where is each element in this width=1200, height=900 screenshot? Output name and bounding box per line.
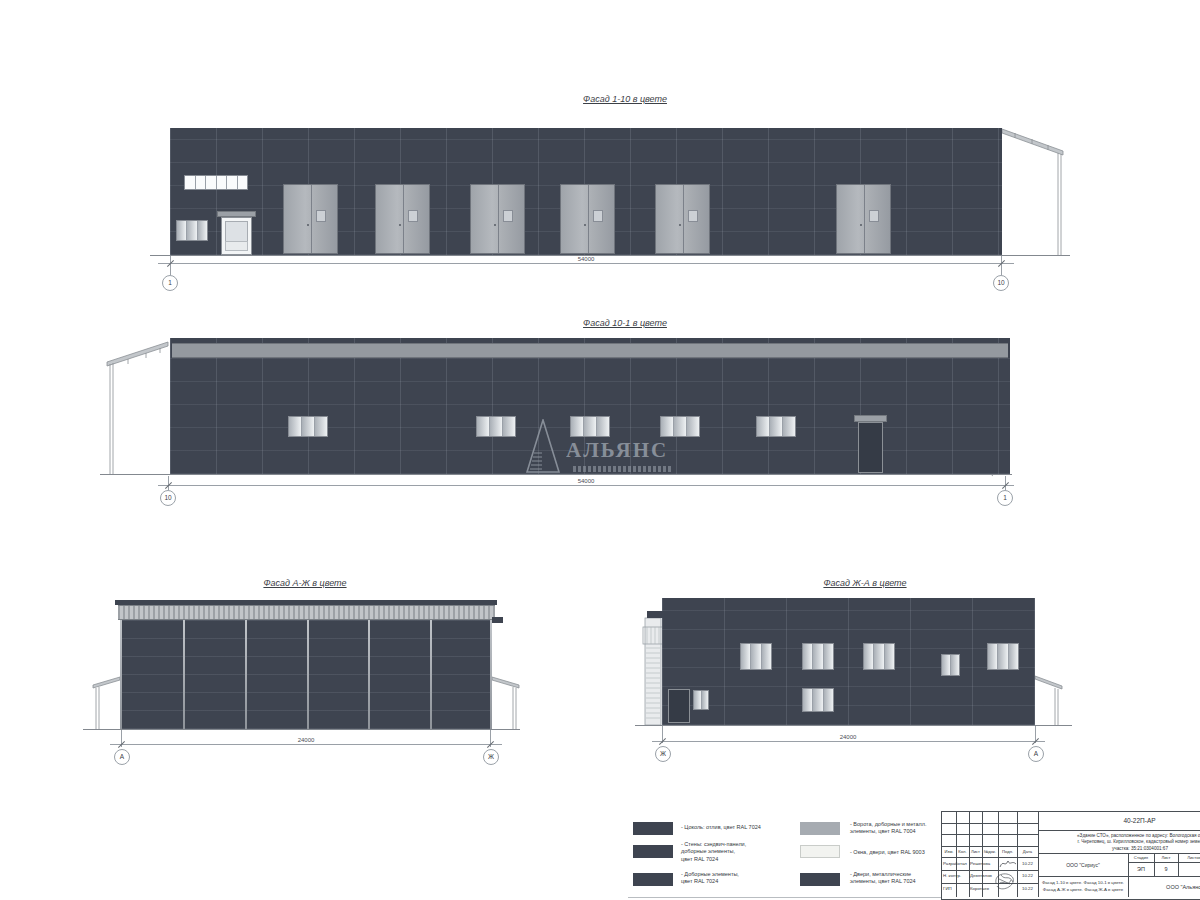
entry-door	[221, 217, 252, 255]
metal-door	[858, 422, 883, 473]
drawing-sheet: Фасад 1-10 в цвете 54000 1 10 Фасад 10-1…	[0, 0, 1200, 900]
axis-bubble: Ж	[655, 746, 671, 762]
stamp-sheets-label: Листов	[1178, 855, 1200, 860]
dimension-label: 24000	[828, 734, 868, 740]
axis-bubble: 10	[160, 490, 176, 506]
facade-10-1-title: Фасад 10-1 в цвете	[500, 318, 750, 328]
gate	[560, 184, 615, 254]
window-small	[941, 654, 960, 676]
stamp-date: 10.22	[1017, 886, 1038, 891]
mullion	[120, 620, 122, 729]
canopy-roof	[1035, 676, 1062, 689]
legend-label: - Доборные элементы, цвет RAL 7024	[681, 871, 796, 886]
axis-bubble: А	[1028, 746, 1044, 762]
stamp-role: Разработал	[943, 861, 967, 866]
canopy-roof	[492, 677, 519, 688]
gate	[836, 184, 891, 254]
window	[176, 220, 208, 241]
title-block: Изм. Кол. Лист №док. Подп. Дата Разработ…	[941, 811, 1200, 900]
legend-swatch	[800, 845, 840, 858]
window	[756, 416, 796, 437]
stamp-date: 10.22	[1017, 861, 1038, 866]
window	[863, 643, 895, 670]
window	[288, 416, 328, 437]
window	[660, 416, 700, 437]
gate	[470, 184, 525, 254]
stamp-name: Девятилов	[970, 873, 992, 878]
axis-bubble: 1	[162, 275, 178, 291]
legend-swatch	[633, 822, 673, 835]
ground-line	[83, 729, 520, 730]
stamp-col: Изм.	[942, 849, 956, 854]
facade-a-zh-title: Фасад А-Ж в цвете	[180, 578, 430, 588]
mullion	[430, 620, 432, 729]
stamp-project: «Здание СТО», расположенное по адресу: В…	[1040, 833, 1200, 852]
mullion	[245, 620, 247, 729]
canopy-roof	[93, 677, 120, 688]
dimension-line	[158, 263, 1014, 264]
gate	[655, 184, 710, 254]
axis-bubble: А	[114, 749, 130, 765]
stamp-name: Коротаев	[970, 886, 989, 891]
stamp-col: Кол.	[956, 849, 969, 854]
stamp-role: Н. контр.	[943, 873, 961, 878]
roof-protrusion	[647, 611, 664, 618]
stamp-stage-value: ЭП	[1128, 866, 1154, 872]
axis-bubble: 1	[997, 490, 1013, 506]
window	[987, 643, 1019, 670]
legend-swatch	[633, 845, 673, 858]
axis-bubble: 10	[993, 275, 1009, 291]
gate	[283, 184, 338, 254]
corrugated-band	[118, 605, 495, 620]
window	[802, 688, 834, 712]
stamp-sheet-value: 9	[1154, 866, 1178, 872]
door-canopy	[854, 415, 887, 422]
metal-door	[668, 689, 690, 723]
stamp-org: ООО "Сириус"	[1038, 862, 1128, 868]
extension-line	[1001, 256, 1002, 275]
parapet-band	[172, 343, 1008, 358]
stamp-col: №док.	[982, 849, 998, 854]
legend-swatch	[800, 822, 840, 835]
window	[802, 643, 834, 670]
gate	[375, 184, 430, 254]
stamp-sheet-label: Лист	[1154, 855, 1178, 860]
window	[740, 643, 772, 670]
stamp-org2: ООО "Альянс"	[1128, 884, 1200, 890]
dimension-line	[158, 485, 1014, 486]
facade-zh-a-title: Фасад Ж-А в цвете	[740, 578, 990, 588]
stamp-role: ГИП	[943, 886, 952, 891]
facade-a-zh-wall	[120, 620, 492, 729]
watermark-logo	[526, 419, 560, 473]
extension-line	[170, 256, 171, 275]
legend-label: - Цоколь: отлив, цвет RAL 7024	[681, 824, 796, 831]
ground-line	[150, 255, 1070, 256]
axis-bubble: Ж	[483, 749, 499, 765]
facade-1-10-title: Фасад 1-10 в цвете	[500, 94, 750, 104]
window	[570, 416, 610, 437]
legend-label: - Стены: сэндвич-панели, доборные элемен…	[681, 841, 796, 863]
stamp-content: Фасад 1-10 в цвете. Фасад 10-1 в цвете. …	[1038, 880, 1128, 893]
watermark-text: АЛЬЯНС	[566, 438, 668, 463]
dimension-line	[652, 741, 1045, 742]
watermark-tagline	[573, 466, 673, 472]
ground-line	[100, 474, 1012, 475]
dimension-label: 54000	[564, 478, 608, 484]
dimension-label: 54000	[564, 256, 608, 262]
window	[476, 416, 516, 437]
mullion	[490, 620, 492, 729]
dimension-label: 24000	[286, 737, 326, 743]
stamp-date: 10.22	[1017, 873, 1038, 878]
stamp-doc-code: 40-22П-АР	[1038, 817, 1200, 824]
canopy-roof	[1002, 129, 1063, 155]
mullion	[183, 620, 185, 729]
stamp-col: Подп.	[998, 849, 1017, 854]
legend-swatch	[633, 873, 673, 886]
legend-swatch	[800, 873, 840, 886]
roof-protrusion	[492, 617, 503, 623]
mullion	[307, 620, 309, 729]
stamp-name: Решетова	[970, 861, 990, 866]
ground-line	[635, 725, 1072, 726]
signature	[999, 858, 1017, 869]
stamp-stage-label: Стадия	[1128, 855, 1154, 860]
dimension-line	[110, 744, 502, 745]
canopy-roof	[107, 342, 168, 366]
facade-zh-a-wall	[662, 598, 1035, 725]
stamp-col: Лист	[969, 849, 982, 854]
stamp-col: Дата	[1017, 849, 1038, 854]
ribbon-window	[184, 175, 248, 190]
mullion	[368, 620, 370, 729]
signature-seal	[992, 869, 1019, 896]
window-small	[693, 690, 709, 710]
